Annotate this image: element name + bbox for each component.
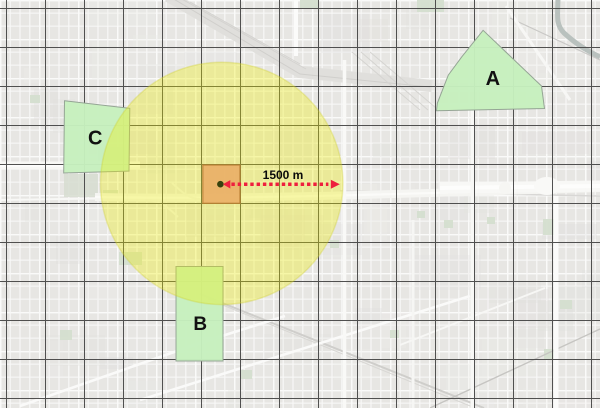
svg-text:B: B	[193, 314, 207, 335]
svg-text:C: C	[88, 128, 102, 150]
svg-text:A: A	[486, 68, 500, 90]
svg-text:1500 m: 1500 m	[263, 168, 304, 182]
